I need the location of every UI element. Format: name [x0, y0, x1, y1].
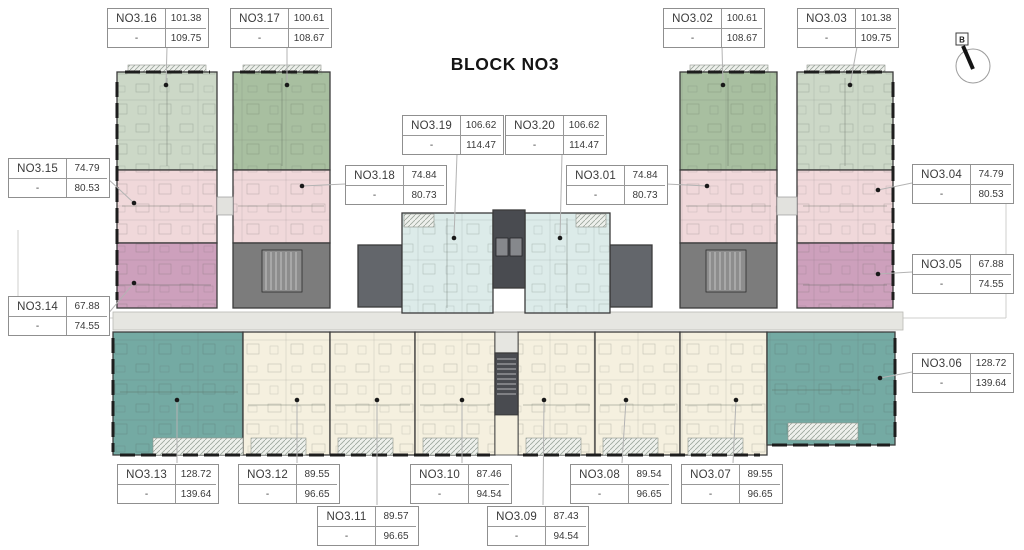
service-core-right [610, 245, 652, 307]
unit-label-NO3.20: NO3.20 106.62 - 114.47 [505, 115, 607, 155]
unit-id: NO3.08 [571, 465, 628, 484]
unit-label-NO3.04: NO3.04 74.79 - 80.53 [912, 164, 1014, 204]
unit-dash: - [403, 135, 460, 154]
unit-NO3.12 [243, 332, 330, 455]
unit-area-2: 96.65 [739, 484, 780, 503]
middle-block [358, 210, 652, 313]
unit-area-1: 87.43 [545, 507, 586, 526]
unit-dash: - [506, 135, 563, 154]
unit-NO3.07 [680, 332, 767, 455]
unit-label-NO3.02: NO3.02 100.61 - 108.67 [663, 8, 765, 48]
unit-id: NO3.14 [9, 297, 66, 316]
bridge [777, 197, 797, 215]
elevator-core [493, 210, 525, 288]
unit-area-1: 74.84 [403, 166, 444, 185]
unit-label-NO3.09: NO3.09 87.43 - 94.54 [487, 506, 589, 546]
unit-label-NO3.08: NO3.08 89.54 - 96.65 [570, 464, 672, 504]
unit-area-2: 74.55 [66, 316, 107, 335]
unit-area-2: 139.64 [970, 373, 1011, 392]
right-wing [680, 65, 893, 308]
unit-area-1: 89.57 [375, 507, 416, 526]
unit-dash: - [664, 28, 721, 47]
unit-NO3.10 [415, 332, 495, 455]
unit-dash: - [9, 178, 66, 197]
unit-area-1: 74.84 [624, 166, 665, 185]
unit-area-2: 80.73 [403, 185, 444, 204]
unit-area-1: 74.79 [66, 159, 107, 178]
unit-area-1: 106.62 [563, 116, 604, 135]
unit-area-1: 74.79 [970, 165, 1011, 184]
unit-dash: - [411, 484, 468, 503]
unit-dash: - [239, 484, 296, 503]
stair-core [233, 243, 330, 308]
unit-NO3.08 [595, 332, 680, 455]
unit-id: NO3.10 [411, 465, 468, 484]
unit-label-NO3.11: NO3.11 89.57 - 96.65 [317, 506, 419, 546]
unit-area-1: 128.72 [175, 465, 216, 484]
unit-label-NO3.16: NO3.16 101.38 - 109.75 [107, 8, 209, 48]
unit-dash: - [231, 28, 288, 47]
unit-area-1: 89.55 [739, 465, 780, 484]
unit-area-2: 96.65 [296, 484, 337, 503]
unit-label-NO3.03: NO3.03 101.38 - 109.75 [797, 8, 899, 48]
unit-label-NO3.13: NO3.13 128.72 - 139.64 [117, 464, 219, 504]
unit-area-2: 74.55 [970, 274, 1011, 293]
unit-id: NO3.20 [506, 116, 563, 135]
unit-label-NO3.14: NO3.14 67.88 - 74.55 [8, 296, 110, 336]
unit-dash: - [118, 484, 175, 503]
unit-label-NO3.07: NO3.07 89.55 - 96.65 [681, 464, 783, 504]
unit-area-1: 89.55 [296, 465, 337, 484]
unit-id: NO3.18 [346, 166, 403, 185]
unit-area-2: 108.67 [288, 28, 329, 47]
unit-id: NO3.13 [118, 465, 175, 484]
unit-dash: - [567, 185, 624, 204]
unit-id: NO3.05 [913, 255, 970, 274]
unit-dash: - [913, 274, 970, 293]
unit-dash: - [913, 373, 970, 392]
unit-dash: - [913, 184, 970, 203]
unit-id: NO3.09 [488, 507, 545, 526]
unit-area-1: 101.38 [855, 9, 896, 28]
unit-id: NO3.19 [403, 116, 460, 135]
unit-dash: - [346, 185, 403, 204]
bridge [217, 197, 233, 215]
unit-area-2: 108.67 [721, 28, 762, 47]
service-core-left [358, 245, 402, 307]
unit-area-2: 109.75 [165, 28, 206, 47]
unit-dash: - [682, 484, 739, 503]
unit-NO3.20 [525, 213, 610, 313]
unit-NO3.14 [117, 243, 217, 308]
compass-north-label: B [959, 36, 965, 45]
unit-NO3.04 [797, 170, 893, 243]
unit-area-2: 139.64 [175, 484, 216, 503]
unit-area-1: 100.61 [288, 9, 329, 28]
floor-plan-page: BLOCK NO3 [0, 0, 1024, 550]
corridor [113, 312, 903, 330]
unit-area-2: 109.75 [855, 28, 896, 47]
unit-area-2: 114.47 [563, 135, 604, 154]
unit-area-1: 87.46 [468, 465, 509, 484]
unit-area-1: 67.88 [970, 255, 1011, 274]
unit-label-NO3.17: NO3.17 100.61 - 108.67 [230, 8, 332, 48]
unit-dash: - [9, 316, 66, 335]
unit-label-NO3.19: NO3.19 106.62 - 114.47 [402, 115, 504, 155]
unit-NO3.09 [518, 332, 595, 455]
unit-id: NO3.17 [231, 9, 288, 28]
unit-area-2: 94.54 [468, 484, 509, 503]
unit-dash: - [488, 526, 545, 545]
unit-area-1: 106.62 [460, 116, 501, 135]
unit-NO3.15 [117, 170, 217, 243]
unit-dash: - [798, 28, 855, 47]
unit-id: NO3.02 [664, 9, 721, 28]
unit-area-1: 128.72 [970, 354, 1011, 373]
unit-NO3.02 [680, 72, 777, 170]
unit-id: NO3.03 [798, 9, 855, 28]
unit-id: NO3.04 [913, 165, 970, 184]
unit-area-2: 114.47 [460, 135, 501, 154]
unit-NO3.13 [113, 332, 243, 455]
unit-id: NO3.12 [239, 465, 296, 484]
left-wing [117, 65, 330, 308]
unit-NO3.01 [680, 170, 777, 243]
page-title: BLOCK NO3 [420, 54, 590, 75]
unit-NO3.11 [330, 332, 415, 455]
unit-label-NO3.12: NO3.12 89.55 - 96.65 [238, 464, 340, 504]
unit-id: NO3.15 [9, 159, 66, 178]
stair-core [680, 243, 777, 308]
unit-label-NO3.10: NO3.10 87.46 - 94.54 [410, 464, 512, 504]
unit-dash: - [318, 526, 375, 545]
unit-area-2: 80.53 [970, 184, 1011, 203]
unit-label-NO3.15: NO3.15 74.79 - 80.53 [8, 158, 110, 198]
unit-id: NO3.11 [318, 507, 375, 526]
unit-NO3.19 [402, 213, 493, 313]
unit-id: NO3.01 [567, 166, 624, 185]
unit-area-2: 80.53 [66, 178, 107, 197]
unit-area-1: 89.54 [628, 465, 669, 484]
bottom-bar [113, 332, 895, 455]
unit-NO3.18 [233, 170, 330, 243]
unit-id: NO3.06 [913, 354, 970, 373]
unit-area-2: 96.65 [375, 526, 416, 545]
unit-label-NO3.18: NO3.18 74.84 - 80.73 [345, 165, 447, 205]
unit-id: NO3.07 [682, 465, 739, 484]
unit-dash: - [571, 484, 628, 503]
unit-area-2: 94.54 [545, 526, 586, 545]
unit-dash: - [108, 28, 165, 47]
unit-area-2: 96.65 [628, 484, 669, 503]
unit-area-2: 80.73 [624, 185, 665, 204]
unit-label-NO3.01: NO3.01 74.84 - 80.73 [566, 165, 668, 205]
stair-core-center [495, 332, 518, 455]
unit-label-NO3.05: NO3.05 67.88 - 74.55 [912, 254, 1014, 294]
unit-id: NO3.16 [108, 9, 165, 28]
unit-area-1: 67.88 [66, 297, 107, 316]
unit-area-1: 101.38 [165, 9, 206, 28]
unit-label-NO3.06: NO3.06 128.72 - 139.64 [912, 353, 1014, 393]
unit-area-1: 100.61 [721, 9, 762, 28]
unit-NO3.17 [233, 72, 330, 170]
compass: B [956, 33, 990, 83]
